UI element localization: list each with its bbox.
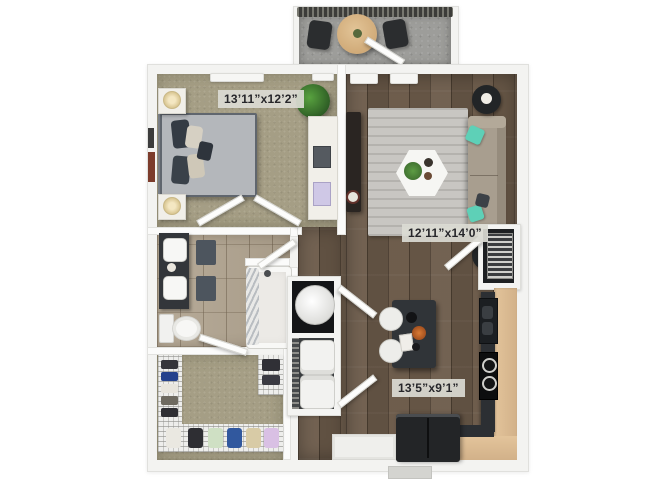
stool-top <box>379 307 403 331</box>
floor-plan: 13’11”x12’2” 12’11”x14’0” 13’5”x9’1” <box>0 0 670 480</box>
burner-icon-1 <box>482 358 497 373</box>
kitchen-sink-bowl <box>482 306 493 319</box>
bath-mat-bottom <box>196 276 216 301</box>
coffee-table-decor-2 <box>424 172 432 180</box>
closet-shoes-2 <box>161 372 178 381</box>
patio-chair-right <box>382 18 410 50</box>
closet-clothes-purple <box>264 428 279 448</box>
dryer-icon <box>300 375 335 409</box>
burner-icon-2 <box>482 376 497 391</box>
desk-item-books <box>313 146 331 168</box>
side-table-lamp-top-icon <box>481 93 492 104</box>
closet-shoes-3 <box>161 384 178 393</box>
wall-bathroom-hall-upper <box>290 227 298 237</box>
living-room-dimensions-label: 12’11”x14’0” <box>402 224 488 242</box>
bath-mat-top <box>196 240 216 265</box>
vanity-sink-bottom <box>163 276 187 300</box>
hvac-unit-grille <box>487 233 513 279</box>
kitchen-dimensions-label: 13’5”x9’1” <box>392 379 465 397</box>
island-decor-small <box>412 343 420 351</box>
closet-shelf-items-dark-2 <box>262 375 280 385</box>
water-heater-icon <box>295 285 335 325</box>
coffee-table-decor <box>424 158 433 167</box>
closet-clothes-tan <box>246 428 261 448</box>
laundry-vent <box>292 338 299 409</box>
closet-shoes-1 <box>161 360 178 369</box>
wall-bedroom-living <box>337 64 346 235</box>
coffee-table-plant-icon <box>404 162 422 180</box>
entry-cabinet <box>332 434 396 460</box>
vanity-sink-top <box>163 238 187 262</box>
closet-shoes-4 <box>161 396 178 405</box>
vanity-decor <box>167 263 176 272</box>
kitchen-sink-bowl-2 <box>482 322 493 335</box>
island-decor-dark <box>406 312 417 323</box>
lamp-icon-bottom <box>163 197 181 215</box>
bedroom-dimensions-label: 13’11”x12’2” <box>218 90 304 108</box>
kitchen-sink <box>479 298 498 344</box>
bedroom-ceiling-light-2 <box>312 73 334 81</box>
shower-curtain <box>246 268 259 345</box>
sofa-cushion-line <box>470 175 498 176</box>
tub-faucet-icon <box>264 270 271 277</box>
toilet-bowl <box>172 316 201 341</box>
island-decor-bowl <box>412 326 426 340</box>
washer-icon <box>300 340 335 375</box>
closet-clothes-dark <box>188 428 203 448</box>
closet-clothes-white <box>166 428 181 448</box>
closet-shoes-5 <box>161 408 178 417</box>
living-window-sill-left <box>350 73 378 84</box>
balcony-railing <box>297 7 453 17</box>
patio-chair-left <box>306 20 333 51</box>
sofa-back <box>497 118 506 234</box>
desk-item-tablet <box>313 182 331 206</box>
closet-clothes-green <box>208 428 223 448</box>
closet-clothes-blue <box>227 428 242 448</box>
closet-shelf-items-dark <box>262 359 280 371</box>
table-plant-icon <box>353 29 362 38</box>
lamp-icon-top <box>163 91 181 109</box>
wall-art-2 <box>148 152 155 182</box>
bedroom-ceiling-light <box>210 73 264 82</box>
wall-art-1 <box>148 128 154 148</box>
console-vase-flowers <box>348 192 358 202</box>
refrigerator-door-split <box>427 418 429 458</box>
entry-threshold <box>388 466 432 479</box>
living-window-sill-right <box>390 73 418 84</box>
